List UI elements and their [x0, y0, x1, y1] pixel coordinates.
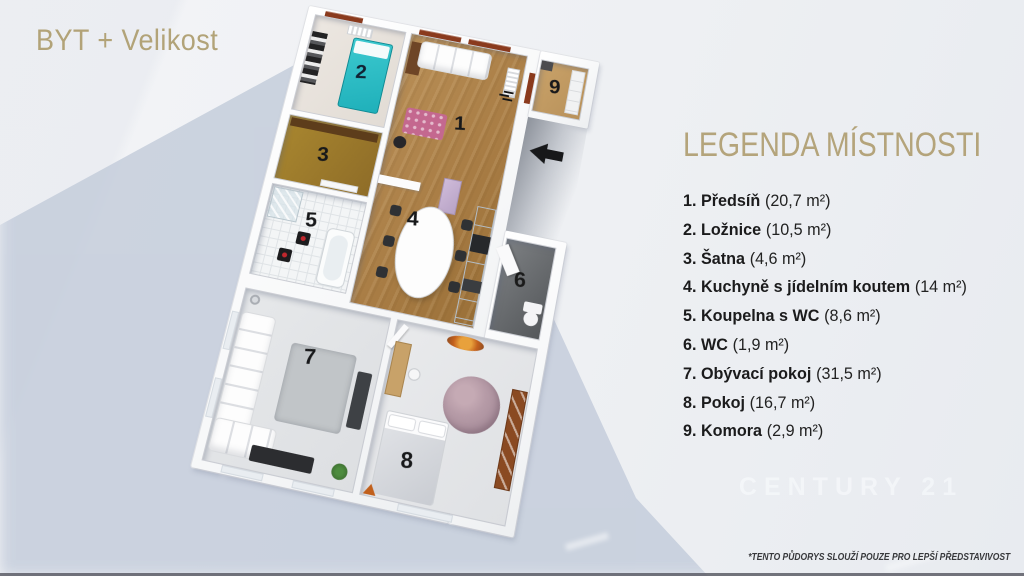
office-chair	[392, 135, 407, 149]
wall-stub	[378, 174, 421, 191]
legend-item-6: 6. WC(1,9 m²)	[683, 335, 967, 364]
desk-chair	[407, 367, 422, 382]
pillow	[353, 40, 390, 59]
dining-chair	[375, 266, 388, 279]
room-number-6: 6	[514, 269, 527, 291]
washer-dot	[300, 236, 306, 242]
century21-watermark: CENTURY 21	[726, 473, 976, 502]
dryer	[277, 247, 293, 262]
legend-item-7: 7. Obývací pokoj(31,5 m²)	[683, 364, 967, 393]
orange-item	[363, 482, 378, 496]
dryer-dot	[281, 252, 287, 258]
pink-rug	[401, 107, 447, 141]
tv-bench	[248, 444, 314, 474]
room-number-3: 3	[316, 144, 329, 164]
dining-chair	[382, 235, 395, 248]
sofa-hall	[416, 41, 492, 81]
room-number-8: 8	[400, 449, 414, 472]
dining-chair	[389, 204, 402, 217]
plant	[330, 462, 349, 481]
sink	[461, 278, 482, 294]
room-number-7: 7	[303, 346, 317, 368]
shower	[267, 186, 304, 222]
legend-item-4: 4. Kuchyně s jídelním koutem(14 m²)	[683, 277, 967, 306]
legend-item-1: 1. Předsíň(20,7 m²)	[683, 191, 967, 220]
floor-lamp	[249, 294, 262, 306]
legend-item-5: 5. Koupelna s WC(8,6 m²)	[683, 306, 967, 335]
arrow-head	[528, 140, 549, 164]
dining-chair	[454, 249, 467, 262]
dining-chair	[448, 281, 461, 294]
radiator	[347, 24, 374, 38]
dining-chair	[460, 219, 473, 232]
legend-item-2: 2. Ložnice(10,5 m²)	[683, 220, 967, 249]
room-number-5: 5	[304, 210, 317, 231]
room-komora: 9	[532, 60, 588, 119]
room-number-2: 2	[355, 62, 368, 82]
legend-list: 1. Předsíň(20,7 m²) 2. Ložnice(10,5 m²) …	[683, 191, 967, 450]
legend-item-9: 9. Komora(2,9 m²)	[683, 421, 967, 450]
legend-item-3: 3. Šatna(4,6 m²)	[683, 249, 967, 278]
bathtub-basin	[321, 234, 349, 282]
entrance-arrow-icon	[528, 140, 565, 167]
washer	[295, 231, 311, 246]
scene: 2 9 3 5	[0, 0, 1024, 576]
disclaimer-text: *TENTO PŮDORYS SLOUŽÍ POUZE PRO LEPŠÍ PŘ…	[748, 552, 1010, 563]
page-title: BYT + Velikost	[36, 24, 218, 58]
storage-box	[540, 60, 553, 71]
room-number-9: 9	[549, 77, 561, 97]
legend-heading: LEGENDA MÍSTNOSTI	[683, 126, 981, 165]
room-number-4: 4	[406, 209, 419, 230]
oven	[469, 234, 490, 255]
arrow-tail	[545, 149, 563, 162]
room-koupelna: 5	[250, 184, 366, 293]
room-number-1: 1	[454, 114, 466, 134]
legend-item-8: 8. Pokoj(16,7 m²)	[683, 393, 967, 422]
